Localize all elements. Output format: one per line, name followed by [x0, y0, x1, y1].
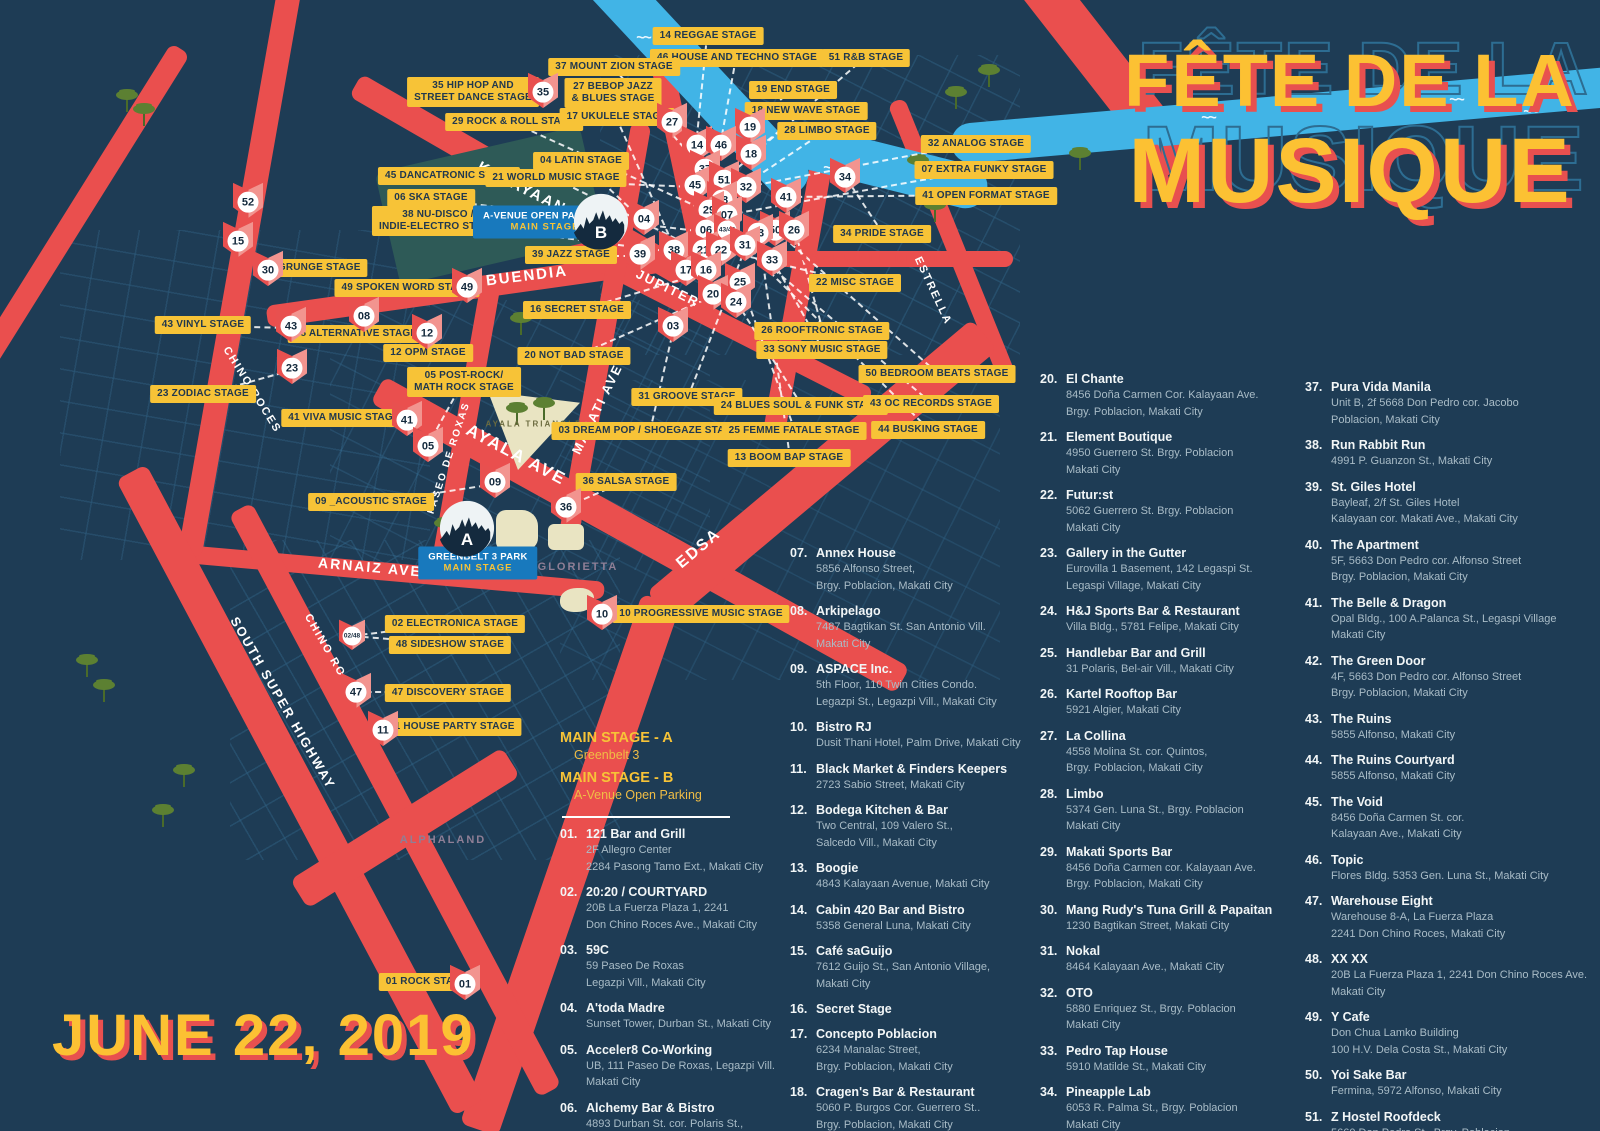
venue-address-line: Brgy. Poblacion, Makati City [1066, 877, 1272, 892]
stage-label: 47 DISCOVERY STAGE [385, 684, 511, 702]
glorietta-block [548, 524, 584, 550]
venue-address-line: Don Chua Lamko Building [1331, 1026, 1587, 1041]
stage-pin-number: 35 [533, 82, 554, 103]
venue-entry: 05.Acceler8 Co-WorkingUB, 111 Paseo De R… [560, 1043, 775, 1090]
venue-number: 11. [790, 762, 816, 776]
tree-icon [988, 74, 990, 87]
stage-label: 21 WORLD MUSIC STAGE [485, 169, 626, 187]
stage-pin-number: 01 [455, 974, 476, 995]
stage-label: 04 LATIN STAGE [533, 152, 629, 170]
venue-name-text: Black Market & Finders Keepers [816, 762, 1007, 776]
venue-entry: 12.Bodega Kitchen & BarTwo Central, 109 … [790, 803, 1021, 850]
venue-name: 47.Warehouse Eight [1305, 894, 1587, 908]
main-stage-a-label: MAIN STAGE - A [560, 730, 790, 746]
venue-name-text: Alchemy Bar & Bistro [586, 1101, 715, 1115]
venue-number: 12. [790, 803, 816, 817]
venue-number: 18. [790, 1085, 816, 1099]
venue-number: 20. [1040, 372, 1066, 386]
venue-address-line: Brgy. Poblacion, Makati City [1066, 405, 1272, 420]
venue-name: 41.The Belle & Dragon [1305, 596, 1587, 610]
stage-pin-number: 10 [592, 604, 613, 625]
venue-address-line: Eurovilla 1 Basement, 142 Legaspi St. [1066, 562, 1272, 577]
venue-address-line: 4F, 5663 Don Pedro cor. Alfonso Street [1331, 670, 1587, 685]
venue-entry: 04.A'toda MadreSunset Tower, Durban St.,… [560, 1001, 775, 1032]
stage-pin-number: 26 [784, 220, 805, 241]
venue-name: 22.Futur:st [1040, 488, 1272, 502]
venue-name: 39.St. Giles Hotel [1305, 480, 1587, 494]
venue-name-text: 121 Bar and Grill [586, 827, 685, 841]
event-date: JUNE 22, 2019 [52, 1002, 475, 1069]
tree-icon [103, 689, 105, 702]
venue-number: 29. [1040, 845, 1066, 859]
venue-entry: 02.20:20 / COURTYARD20B La Fuerza Plaza … [560, 885, 775, 932]
venue-address-line: 5856 Alfonso Street, [816, 562, 1021, 577]
venue-name-text: Bodega Kitchen & Bar [816, 803, 948, 817]
stage-pin-number: 49 [457, 277, 478, 298]
venue-address-line: 5855 Alfonso, Makati City [1331, 728, 1587, 743]
venue-address-line: 1230 Bagtikan Street, Makati City [1066, 919, 1272, 934]
main-stage-b-label: MAIN STAGE - B [560, 770, 790, 786]
venue-entry: 47.Warehouse EightWarehouse 8-A, La Fuer… [1305, 894, 1587, 941]
stage-label: 20 NOT BAD STAGE [517, 347, 630, 365]
venue-entry: 41.The Belle & DragonOpal Bldg., 100 A.P… [1305, 596, 1587, 643]
main-stage-legend: MAIN STAGE - A Greenbelt 3 MAIN STAGE - … [560, 730, 790, 818]
venue-entry: 21.Element Boutique4950 Guerrero St. Brg… [1040, 430, 1272, 477]
venue-entry: 10.Bistro RJDusit Thani Hotel, Palm Driv… [790, 720, 1021, 751]
festival-map-poster: ~~~~~~~~~~~~~~KALAYAANBUENDIAJUPITERROCK… [0, 0, 1600, 1131]
venue-entry: 49.Y CafeDon Chua Lamko Building100 H.V.… [1305, 1010, 1587, 1057]
venue-name-text: Acceler8 Co-Working [586, 1043, 712, 1057]
venue-entry: 03.59C59 Paseo De RoxasLegazpi Vill., Ma… [560, 943, 775, 990]
venue-number: 32. [1040, 986, 1066, 1000]
venue-number: 51. [1305, 1110, 1331, 1124]
venue-number: 02. [560, 885, 586, 899]
stage-pin-number: 15 [228, 231, 249, 252]
venue-number: 05. [560, 1043, 586, 1057]
tree-icon [955, 96, 957, 109]
venue-address-line: 5855 Alfonso, Makati City [1331, 769, 1587, 784]
venue-name-text: OTO [1066, 986, 1093, 1000]
venue-number: 30. [1040, 903, 1066, 917]
venue-name-text: Y Cafe [1331, 1010, 1370, 1024]
venue-number: 22. [1040, 488, 1066, 502]
venue-name-text: H&J Sports Bar & Restaurant [1066, 604, 1240, 618]
stage-pin-number: 08 [354, 306, 375, 327]
venue-entry: 22.Futur:st5062 Guerrero St. Brgy. Pobla… [1040, 488, 1272, 535]
stage-pin-number: 04 [634, 209, 655, 230]
venue-name: 24.H&J Sports Bar & Restaurant [1040, 604, 1272, 618]
venue-entry: 30.Mang Rudy's Tuna Grill & Papaitan1230… [1040, 903, 1272, 934]
venue-entry: 37.Pura Vida ManilaUnit B, 2f 5668 Don P… [1305, 380, 1587, 427]
venue-name-text: Warehouse Eight [1331, 894, 1433, 908]
venue-name-text: Z Hostel Roofdeck [1331, 1110, 1441, 1124]
venue-entry: 39.St. Giles HotelBayleaf, 2/f St. Giles… [1305, 480, 1587, 527]
venue-entry: 16.Secret Stage [790, 1002, 1021, 1016]
tree-icon [126, 99, 128, 112]
venue-address-line: 100 H.V. Dela Costa St., Makati City [1331, 1043, 1587, 1058]
venue-name-text: Run Rabbit Run [1331, 438, 1425, 452]
venue-address-line: 5062 Guerrero St. Brgy. Poblacion [1066, 504, 1272, 519]
venue-name: 13.Boogie [790, 861, 1021, 875]
venue-address-line: Brgy. Poblacion, Makati City [1066, 761, 1272, 776]
venue-number: 38. [1305, 438, 1331, 452]
venue-number: 33. [1040, 1044, 1066, 1058]
venue-address-line: 8456 Doña Carmen Cor. Kalayaan Ave. [1066, 388, 1272, 403]
venue-number: 16. [790, 1002, 816, 1016]
stage-label: 02 ELECTRONICA STAGE [385, 615, 525, 633]
tree-icon [543, 407, 545, 420]
stage-pin-number: 32 [736, 177, 757, 198]
venue-name: 42.The Green Door [1305, 654, 1587, 668]
venue-address-line: Brgy. Poblacion, Makati City [1331, 570, 1587, 585]
venue-address-line: Opal Bldg., 100 A.Palanca St., Legaspi V… [1331, 612, 1587, 627]
stage-label: 43 OC RECORDS STAGE [863, 395, 999, 413]
venue-entry: 45.The Void8456 Doña Carmen St. cor.Kala… [1305, 795, 1587, 842]
stage-label: 33 SONY MUSIC STAGE [756, 341, 887, 359]
stage-pin-number: 09 [485, 472, 506, 493]
venue-name-text: Mang Rudy's Tuna Grill & Papaitan [1066, 903, 1272, 917]
venue-address-line: 5F, 5663 Don Pedro cor. Alfonso Street [1331, 554, 1587, 569]
venue-name: 06.Alchemy Bar & Bistro [560, 1101, 775, 1115]
venue-entry: 09.ASPACE Inc.5th Floor, 110 Twin Cities… [790, 662, 1021, 709]
venue-name: 05.Acceler8 Co-Working [560, 1043, 775, 1057]
venue-name-text: Café saGuijo [816, 944, 892, 958]
venue-name: 23.Gallery in the Gutter [1040, 546, 1272, 560]
stage-pin-number: 19 [740, 117, 761, 138]
venue-number: 43. [1305, 712, 1331, 726]
venue-number: 03. [560, 943, 586, 957]
venue-number: 08. [790, 604, 816, 618]
stage-label: 35 HIP HOP AND STREET DANCE STAGE [407, 77, 539, 107]
venue-address-line: Legazpi Vill., Makati City [586, 976, 775, 991]
stage-pin-number: 18 [741, 144, 762, 165]
stage-pin-number: 31 [735, 235, 756, 256]
stage-pin-number: 03 [663, 316, 684, 337]
venue-name-text: La Collina [1066, 729, 1126, 743]
stage-pin-number: 33 [762, 250, 783, 271]
greenbelt-park-block [496, 510, 538, 550]
venue-address-line: 2284 Pasong Tamo Ext., Makati City [586, 860, 775, 875]
venue-entry: 51.Z Hostel Roofdeck5660 Don Pedro St., … [1305, 1110, 1587, 1131]
stage-label: 27 BEBOP JAZZ & BLUES STAGE [565, 78, 662, 108]
venue-address-line: 7612 Guijo St., San Antonio Village, [816, 960, 1021, 975]
venue-name-text: Limbo [1066, 787, 1104, 801]
venue-address-line: Unit B, 2f 5668 Don Pedro cor. Jacobo [1331, 396, 1587, 411]
stage-label: 26 ROOFTRONIC STAGE [754, 322, 889, 340]
venue-number: 31. [1040, 944, 1066, 958]
venue-name: 15.Café saGuijo [790, 944, 1021, 958]
venue-address-line: Warehouse 8-A, La Fuerza Plaza [1331, 910, 1587, 925]
venue-entry: 25.Handlebar Bar and Grill31 Polaris, Be… [1040, 646, 1272, 677]
venue-entry: 28.Limbo5374 Gen. Luna St., Brgy. Poblac… [1040, 787, 1272, 834]
venue-number: 26. [1040, 687, 1066, 701]
stage-pin-number: 24 [726, 292, 747, 313]
stage-label: 09 _ACOUSTIC STAGE [308, 493, 434, 511]
venue-address-line: 2241 Don Chino Roces, Makati City [1331, 927, 1587, 942]
venue-entry: 33.Pedro Tap House5910 Matilde St., Maka… [1040, 1044, 1272, 1075]
directory-column-2: 07.Annex House5856 Alfonso Street,Brgy. … [790, 546, 1021, 1131]
venue-entry: 01.121 Bar and Grill2F Allegro Center228… [560, 827, 775, 874]
venue-address-line: 5th Floor, 110 Twin Cities Condo. [816, 678, 1021, 693]
venue-entry: 15.Café saGuijo7612 Guijo St., San Anton… [790, 944, 1021, 991]
venue-name: 12.Bodega Kitchen & Bar [790, 803, 1021, 817]
venue-name-text: Cragen's Bar & Restaurant [816, 1085, 975, 1099]
venue-address-line: Brgy. Poblacion, Makati City [816, 1118, 1021, 1131]
venue-number: 23. [1040, 546, 1066, 560]
venue-address-line: Two Central, 109 Valero St., [816, 819, 1021, 834]
venue-address-line: Makati City [1066, 1118, 1272, 1131]
venue-name: 16.Secret Stage [790, 1002, 1021, 1016]
stage-label: 07 EXTRA FUNKY STAGE [915, 161, 1054, 179]
venue-name: 18.Cragen's Bar & Restaurant [790, 1085, 1021, 1099]
venue-name: 40.The Apartment [1305, 538, 1587, 552]
main-stage-crowd-icon: A [438, 499, 496, 557]
venue-entry: 32.OTO5880 Enriquez St., Brgy. Poblacion… [1040, 986, 1272, 1033]
venue-address-line: 4558 Molina St. cor. Quintos, [1066, 745, 1272, 760]
stage-label: 10 PROGRESSIVE MUSIC STAGE [612, 605, 789, 623]
tree-icon [1079, 157, 1081, 170]
venue-address-line: 4950 Guerrero St. Brgy. Poblacion [1066, 446, 1272, 461]
venue-number: 50. [1305, 1068, 1331, 1082]
venue-number: 39. [1305, 480, 1331, 494]
venue-name: 10.Bistro RJ [790, 720, 1021, 734]
venue-entry: 11.Black Market & Finders Keepers2723 Sa… [790, 762, 1021, 793]
venue-name: 38.Run Rabbit Run [1305, 438, 1587, 452]
venue-address-line: Fermina, 5972 Alfonso, Makati City [1331, 1084, 1587, 1099]
legend-divider [562, 816, 730, 818]
stage-label: 32 ANALOG STAGE [921, 135, 1031, 153]
venue-address-line: 2F Allegro Center [586, 843, 775, 858]
venue-number: 25. [1040, 646, 1066, 660]
stage-label: 34 PRIDE STAGE [833, 225, 931, 243]
venue-address-line: Makati City [586, 1075, 775, 1090]
venue-address-line: Don Chino Roces Ave., Makati City [586, 918, 775, 933]
venue-entry: 31.Nokal8464 Kalayaan Ave., Makati City [1040, 944, 1272, 975]
main-stage-a-venue: Greenbelt 3 [560, 748, 790, 762]
stage-label: 37 MOUNT ZION STAGE [548, 58, 680, 76]
venue-address-line: Makati City [1066, 819, 1272, 834]
venue-address-line: Kalayaan cor. Makati Ave., Makati City [1331, 512, 1587, 527]
venue-name-text: El Chante [1066, 372, 1124, 386]
stage-pin-number: 27 [662, 112, 683, 133]
venue-name-text: Arkipelago [816, 604, 881, 618]
venue-address-line: Poblacion, Makati City [1331, 413, 1587, 428]
stage-label: 08 ALTERNATIVE STAGE [288, 325, 425, 343]
venue-address-line: 5660 Don Pedro St., Brgy. Poblacion [1331, 1126, 1587, 1131]
venue-number: 07. [790, 546, 816, 560]
venue-name: 17.Concepto Poblacion [790, 1027, 1021, 1041]
venue-address-line: Makati City [1331, 628, 1587, 643]
venue-name-text: A'toda Madre [586, 1001, 665, 1015]
stage-label: 48 SIDESHOW STAGE [389, 636, 511, 654]
venue-name-text: Cabin 420 Bar and Bistro [816, 903, 965, 917]
venue-number: 49. [1305, 1010, 1331, 1024]
venue-address-line: 5060 P. Burgos Cor. Guerrero St.. [816, 1101, 1021, 1116]
venue-name: 46.Topic [1305, 853, 1587, 867]
venue-number: 42. [1305, 654, 1331, 668]
venue-address-line: 2723 Sabio Street, Makati City [816, 778, 1021, 793]
stage-label: 41 VIVA MUSIC STAGE [281, 409, 406, 427]
venue-name-text: 20:20 / COURTYARD [586, 885, 707, 899]
stage-pin-number: 34 [835, 167, 856, 188]
venue-name-text: Pineapple Lab [1066, 1085, 1151, 1099]
venue-entry: 23.Gallery in the GutterEurovilla 1 Base… [1040, 546, 1272, 593]
stage-pin-number: 23 [282, 358, 303, 379]
tree-icon [86, 664, 88, 677]
venue-entry: 06.Alchemy Bar & Bistro4893 Durban St. c… [560, 1101, 775, 1131]
venue-address-line: Makati City [1331, 985, 1587, 1000]
venue-entry: 38.Run Rabbit Run4991 P. Guanzon St., Ma… [1305, 438, 1587, 469]
venue-name: 28.Limbo [1040, 787, 1272, 801]
venue-name-text: Futur:st [1066, 488, 1113, 502]
venue-name: 31.Nokal [1040, 944, 1272, 958]
venue-address-line: 8456 Doña Carmen St. cor. [1331, 811, 1587, 826]
venue-name-text: Yoi Sake Bar [1331, 1068, 1407, 1082]
venue-address-line: 59 Paseo De Roxas [586, 959, 775, 974]
main-stage-crowd-icon: B [572, 192, 630, 250]
venue-entry: 17.Concepto Poblacion6234 Manalac Street… [790, 1027, 1021, 1074]
stage-label: 51 R&B STAGE [822, 49, 910, 67]
venue-number: 04. [560, 1001, 586, 1015]
venue-name-text: Kartel Rooftop Bar [1066, 687, 1177, 701]
venue-name: 45.The Void [1305, 795, 1587, 809]
venue-name: 21.Element Boutique [1040, 430, 1272, 444]
venue-name-text: Pura Vida Manila [1331, 380, 1431, 394]
venue-name-text: Secret Stage [816, 1002, 892, 1016]
venue-name-text: Handlebar Bar and Grill [1066, 646, 1206, 660]
venue-address-line: 20B La Fuerza Plaza 1, 2241 [586, 901, 775, 916]
venue-address-line: UB, 111 Paseo De Roxas, Legazpi Vill. [586, 1059, 775, 1074]
venue-address-line: Legazpi St., Legazpi Vill., Makati City [816, 695, 1021, 710]
venue-number: 13. [790, 861, 816, 875]
venue-entry: 40.The Apartment5F, 5663 Don Pedro cor. … [1305, 538, 1587, 585]
venue-address-line: Brgy. Poblacion, Makati City [816, 1060, 1021, 1075]
venue-address-line: 31 Polaris, Bel-air Vill., Makati City [1066, 662, 1272, 677]
venue-name-text: Boogie [816, 861, 858, 875]
stage-label: 13 BOOM BAP STAGE [728, 449, 851, 467]
venue-number: 10. [790, 720, 816, 734]
venue-address-line: Flores Bldg. 5353 Gen. Luna St., Makati … [1331, 869, 1587, 884]
stage-label: 50 BEDROOM BEATS STAGE [859, 365, 1016, 383]
venue-entry: 13.Boogie4843 Kalayaan Avenue, Makati Ci… [790, 861, 1021, 892]
street-label: GLORIETTA [538, 561, 619, 573]
venue-name-text: Element Boutique [1066, 430, 1172, 444]
stage-pin-number: 12 [417, 323, 438, 344]
venue-number: 06. [560, 1101, 586, 1115]
venue-address-line: Makati City [1066, 1018, 1272, 1033]
venue-name: 29.Makati Sports Bar [1040, 845, 1272, 859]
venue-number: 47. [1305, 894, 1331, 908]
venue-number: 41. [1305, 596, 1331, 610]
venue-name-text: Annex House [816, 546, 896, 560]
street-label: ALPHALAND [400, 834, 486, 846]
venue-address-line: 7487 Bagtikan St. San Antonio Vill. [816, 620, 1021, 635]
venue-name: 25.Handlebar Bar and Grill [1040, 646, 1272, 660]
venue-address-line: 6053 R. Palma St., Brgy. Poblacion [1066, 1101, 1272, 1116]
venue-address-line: Makati City [816, 637, 1021, 652]
venue-name-text: The Ruins [1331, 712, 1391, 726]
venue-entry: 14.Cabin 420 Bar and Bistro5358 General … [790, 903, 1021, 934]
venue-name-text: ASPACE Inc. [816, 662, 892, 676]
venue-name-text: Pedro Tap House [1066, 1044, 1168, 1058]
stage-pin-number: 39 [630, 244, 651, 265]
venue-number: 45. [1305, 795, 1331, 809]
stage-pin-number: 05 [418, 436, 439, 457]
venue-number: 46. [1305, 853, 1331, 867]
venue-entry: 18.Cragen's Bar & Restaurant5060 P. Burg… [790, 1085, 1021, 1131]
venue-name: 20.El Chante [1040, 372, 1272, 386]
stage-label: 19 END STAGE [749, 81, 837, 99]
venue-number: 40. [1305, 538, 1331, 552]
main-stage-badge-label: MAIN STAGE [428, 563, 527, 574]
venue-name: 49.Y Cafe [1305, 1010, 1587, 1024]
venue-address-line: 8464 Kalayaan Ave., Makati City [1066, 960, 1272, 975]
stage-pin: 01 [450, 964, 480, 1000]
venue-name: 50.Yoi Sake Bar [1305, 1068, 1587, 1082]
main-stage-letter: B [595, 223, 607, 243]
venue-number: 24. [1040, 604, 1066, 618]
venue-number: 48. [1305, 952, 1331, 966]
venue-name: 32.OTO [1040, 986, 1272, 1000]
venue-name: 43.The Ruins [1305, 712, 1587, 726]
venue-name-text: The Green Door [1331, 654, 1425, 668]
venue-number: 34. [1040, 1085, 1066, 1099]
stage-label: 44 BUSKING STAGE [871, 421, 985, 439]
venue-name-text: Makati Sports Bar [1066, 845, 1172, 859]
tree-icon [183, 774, 185, 787]
venue-address-line: Salcedo Vill., Makati City [816, 836, 1021, 851]
venue-name-text: The Ruins Courtyard [1331, 753, 1455, 767]
venue-name: 02.20:20 / COURTYARD [560, 885, 775, 899]
venue-entry: 42.The Green Door4F, 5663 Don Pedro cor.… [1305, 654, 1587, 701]
venue-name-text: Bistro RJ [816, 720, 872, 734]
stage-label: 11 HOUSE PARTY STAGE [382, 718, 521, 736]
venue-name: 04.A'toda Madre [560, 1001, 775, 1015]
stage-label: 06 SKA STAGE [387, 189, 475, 207]
stage-pin-number: 52 [238, 192, 259, 213]
venue-address-line: 6234 Manalac Street, [816, 1043, 1021, 1058]
venue-name-text: Concepto Poblacion [816, 1027, 937, 1041]
venue-address-line: 4893 Durban St. cor. Polaris St., [586, 1117, 775, 1131]
venue-address-line: 5910 Matilde St., Makati City [1066, 1060, 1272, 1075]
venue-address-line: 5921 Algier, Makati City [1066, 703, 1272, 718]
main-stage-letter: A [461, 530, 473, 550]
venue-name: 26.Kartel Rooftop Bar [1040, 687, 1272, 701]
venue-name-text: The Apartment [1331, 538, 1419, 552]
venue-entry: 50.Yoi Sake BarFermina, 5972 Alfonso, Ma… [1305, 1068, 1587, 1099]
stage-label: 05 POST-ROCK/ MATH ROCK STAGE [407, 367, 521, 397]
venue-number: 15. [790, 944, 816, 958]
poster-title: FÊTE DE LA MUSIQUE [1118, 40, 1582, 223]
venue-name-text: Topic [1331, 853, 1363, 867]
venue-number: 01. [560, 827, 586, 841]
venue-address-line: 5880 Enriquez St., Brgy. Poblacion [1066, 1002, 1272, 1017]
venue-name: 08.Arkipelago [790, 604, 1021, 618]
stage-label: 28 LIMBO STAGE [777, 122, 876, 140]
venue-entry: 46.TopicFlores Bldg. 5353 Gen. Luna St.,… [1305, 853, 1587, 884]
stage-label: 23 ZODIAC STAGE [150, 385, 256, 403]
title-line2: MUSIQUE [1118, 121, 1582, 222]
stage-label: 16 SECRET STAGE [523, 301, 631, 319]
venue-name: 27.La Collina [1040, 729, 1272, 743]
venue-address-line: Sunset Tower, Durban St., Makati City [586, 1017, 775, 1032]
main-stage-b-venue: A-Venue Open Parking [560, 788, 790, 802]
tree-icon [162, 814, 164, 827]
stage-pin-number: 43 [281, 316, 302, 337]
water-wave-icon: ~~ [636, 30, 650, 47]
venue-name: 09.ASPACE Inc. [790, 662, 1021, 676]
stage-pin-number: 11 [373, 720, 394, 741]
